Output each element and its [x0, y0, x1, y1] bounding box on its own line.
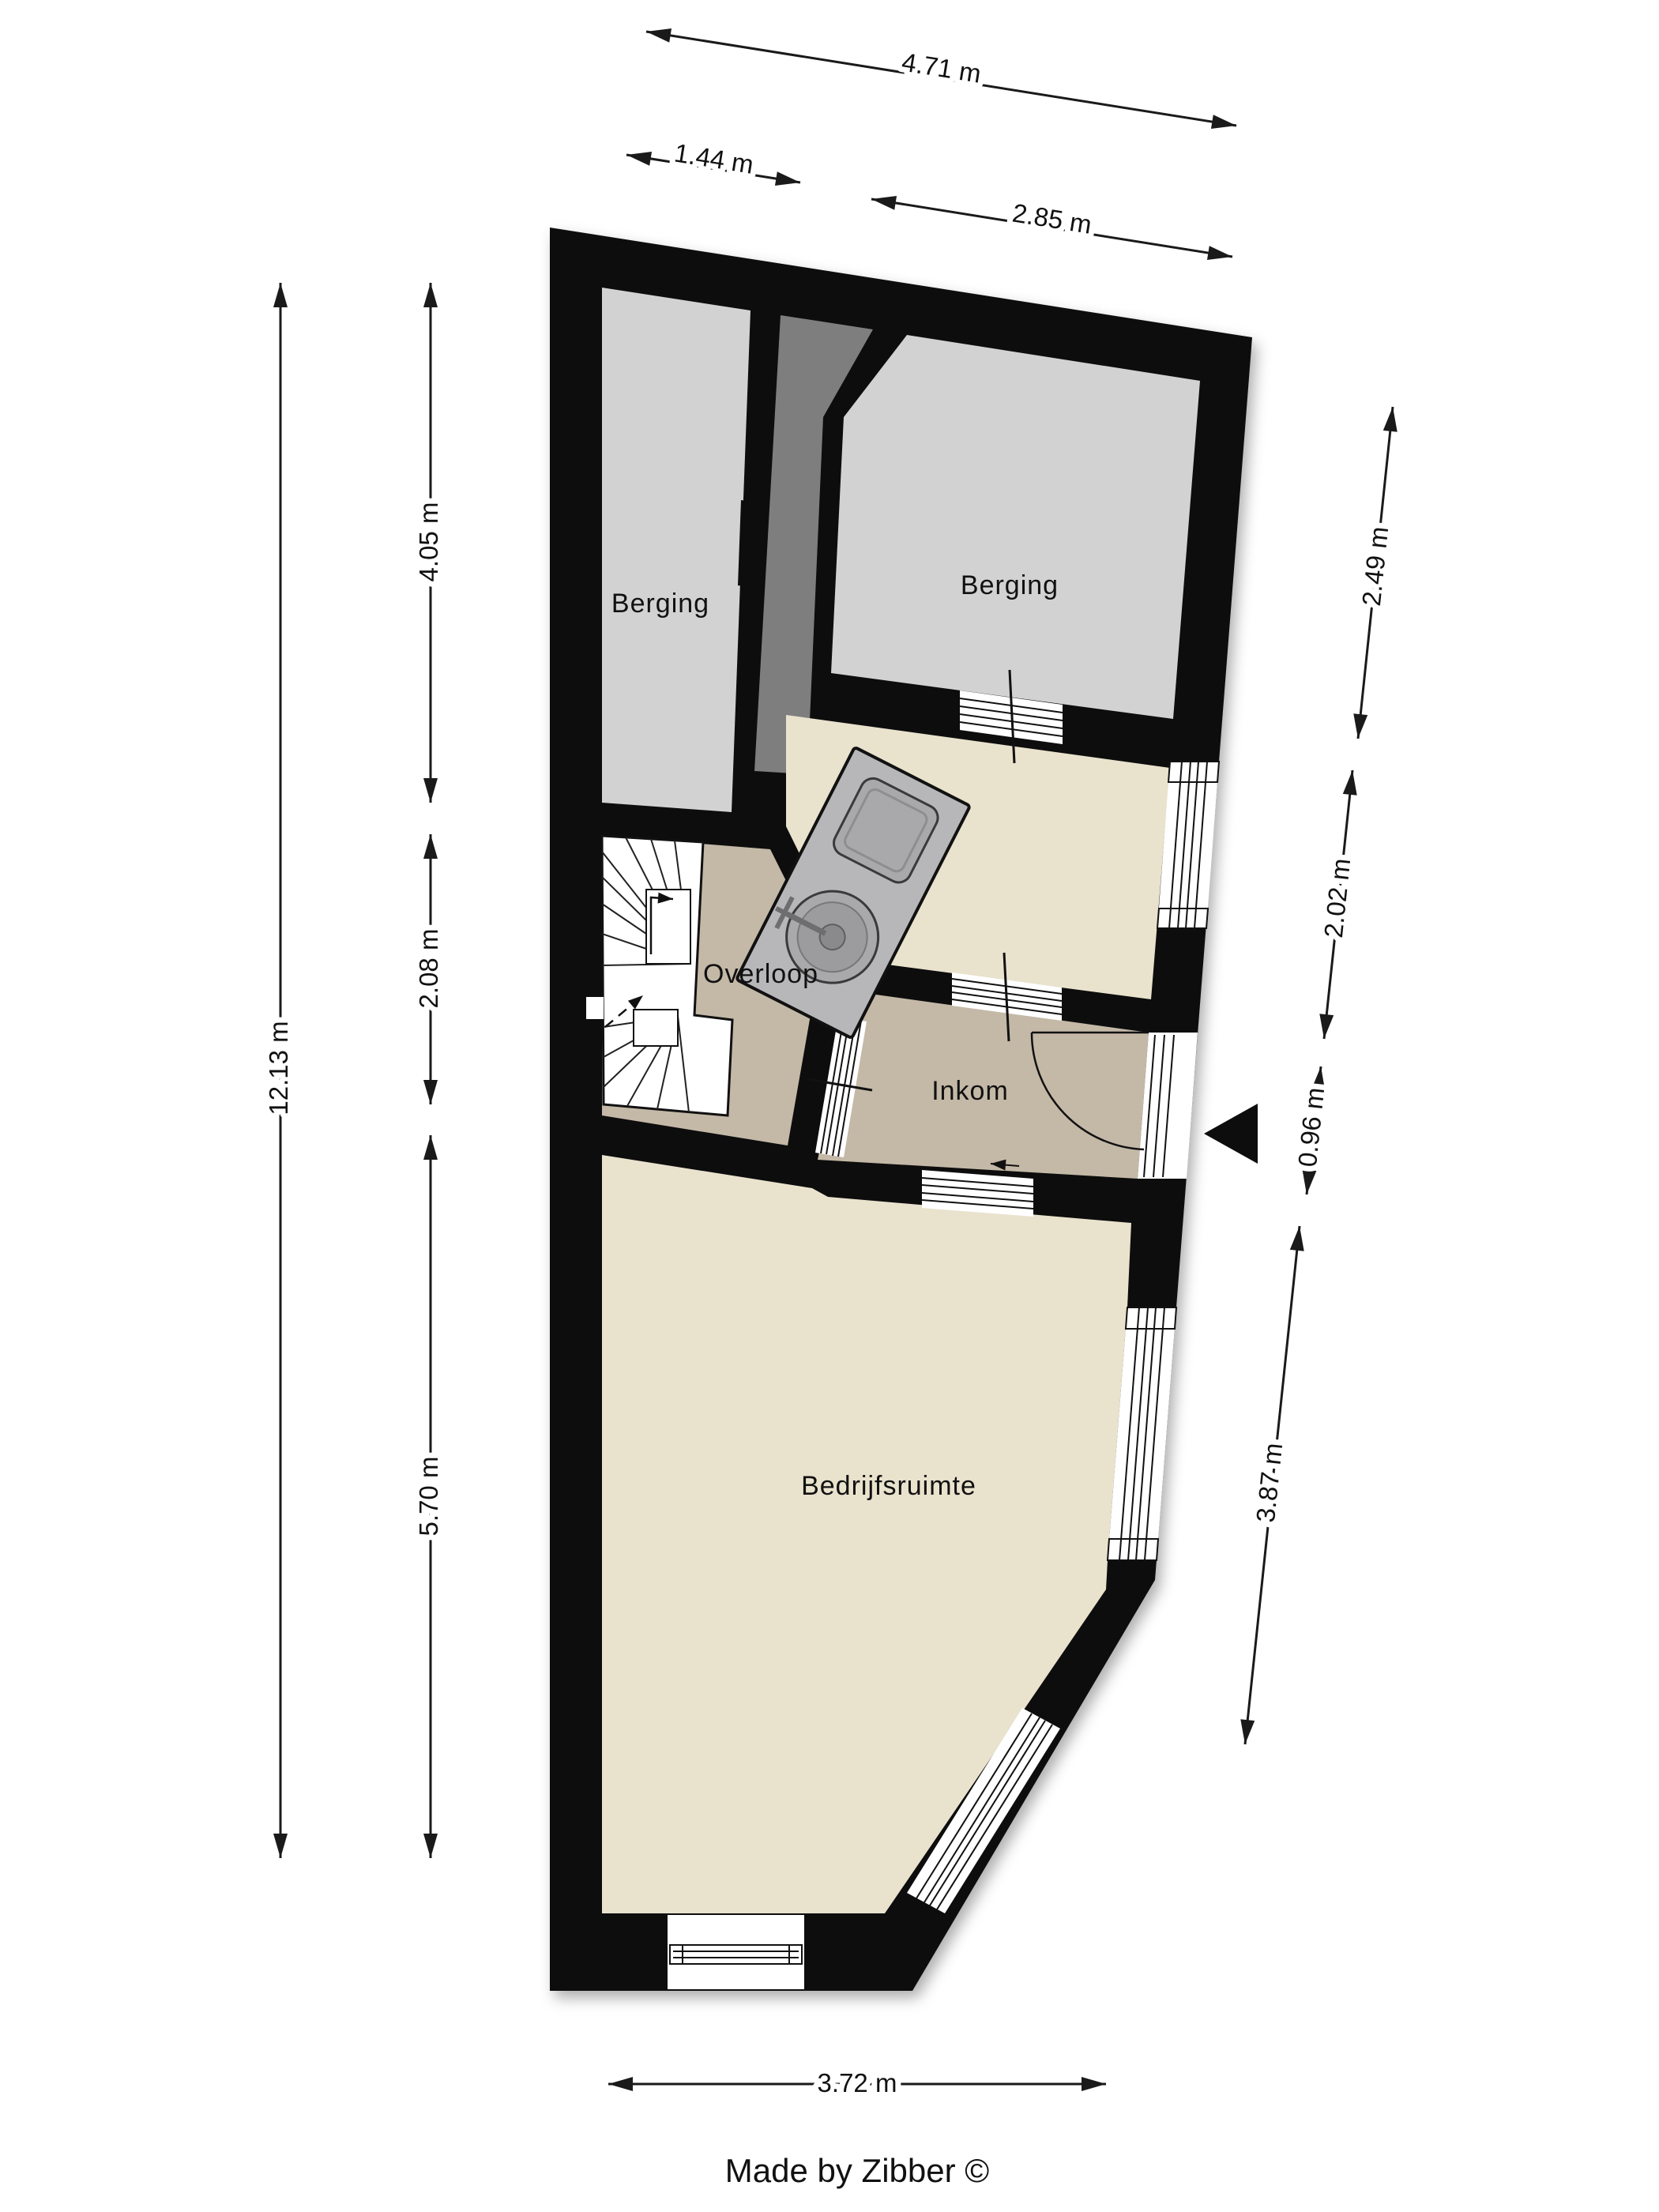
- building: Berging Berging Overloop Inkom Bedrijfsr…: [550, 228, 1258, 1991]
- dim-left-lower: 5.70 m: [414, 1457, 443, 1537]
- wall-pier: [738, 500, 766, 589]
- dim-right-lower: 3.87 m: [1251, 1442, 1288, 1524]
- dim-top-overall: 4.71 m: [900, 47, 983, 88]
- room-label-bedrijfsruimte: Bedrijfsruimte: [801, 1471, 976, 1501]
- entrance-arrow-icon: [1204, 1104, 1258, 1164]
- room-label-berging-right: Berging: [961, 570, 1059, 600]
- room-berging-right-floor: [831, 335, 1200, 719]
- dim-top-left: 1.44 m: [672, 137, 755, 179]
- branding-credit: Made by Zibber ©: [725, 2152, 989, 2189]
- room-label-overloop: Overloop: [703, 959, 818, 989]
- dim-right-upper: 2.49 m: [1356, 525, 1394, 608]
- dim-right-small: 0.96 m: [1292, 1086, 1330, 1168]
- room-label-inkom: Inkom: [931, 1076, 1009, 1106]
- dim-top-right: 2.85 m: [1010, 197, 1093, 239]
- dim-right-middle: 2.02 m: [1319, 857, 1356, 939]
- window-bottom: [668, 1915, 804, 1989]
- room-berging-left-floor: [602, 288, 750, 812]
- dim-left-overall: 12.13 m: [264, 1021, 293, 1115]
- dim-left-upper: 4.05 m: [414, 502, 443, 582]
- dim-left-middle: 2.08 m: [414, 929, 443, 1009]
- floorplan-page: Berging Berging Overloop Inkom Bedrijfsr…: [0, 0, 1659, 2212]
- room-bedrijfsruimte-floor: [602, 1155, 1131, 1913]
- room-label-berging-left: Berging: [611, 589, 709, 619]
- floorplan-canvas: Berging Berging Overloop Inkom Bedrijfsr…: [0, 0, 1659, 2212]
- dim-bottom: 3.72 m: [818, 2068, 897, 2097]
